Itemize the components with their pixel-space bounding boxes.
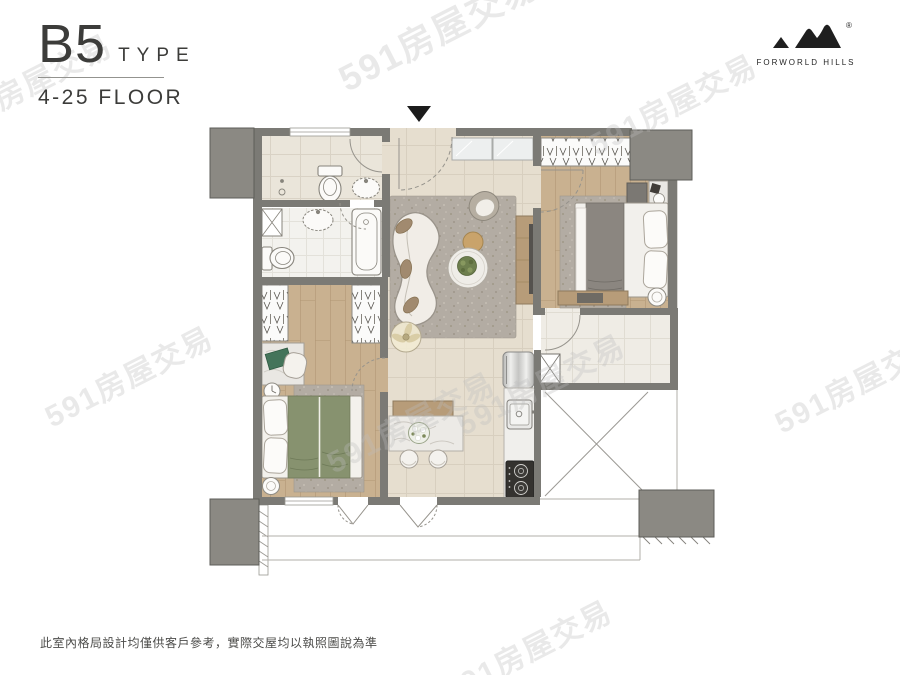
- unit-type-code: B5: [38, 20, 106, 70]
- mountain-logo-icon: ®: [751, 18, 861, 52]
- title-divider: [38, 77, 164, 78]
- toilet: [319, 176, 341, 202]
- unit-title-block: B5 TYPE 4-25 FLOOR: [38, 20, 196, 110]
- french-door: [338, 505, 368, 524]
- refrigerator: [503, 352, 534, 388]
- entry-arrow-icon: [407, 106, 431, 122]
- tv: [577, 293, 603, 303]
- balcony-curb: [259, 505, 268, 575]
- disclaimer-text: 此室內格局設計均僅供客戶參考，實際交屋均以執照圖說為準: [40, 634, 378, 651]
- registered-mark: ®: [846, 21, 852, 30]
- island-wood-top: [393, 401, 453, 416]
- entry-threshold: [390, 128, 456, 137]
- unit-type-label: TYPE: [118, 45, 196, 67]
- french-door: [400, 505, 437, 527]
- wardrobe: [352, 285, 382, 343]
- ceiling-fan: [391, 322, 422, 352]
- plant: [458, 257, 477, 276]
- wardrobe: [262, 285, 288, 341]
- page: B5 TYPE 4-25 FLOOR ® FORWORLD HILLS 591房…: [0, 0, 900, 675]
- burner: [515, 465, 528, 478]
- decor-plate: [648, 288, 666, 306]
- pillow: [643, 250, 668, 288]
- pillow: [643, 210, 668, 248]
- pillow: [263, 399, 288, 435]
- brand-logo: ® FORWORLD HILLS: [746, 18, 866, 67]
- floor-range: 4-25 FLOOR: [38, 86, 196, 110]
- closet: [541, 138, 630, 166]
- void-cross: [545, 392, 648, 496]
- pillow: [263, 437, 288, 473]
- tv: [529, 224, 533, 294]
- duvet: [586, 203, 624, 297]
- nightstand: [263, 478, 280, 495]
- burner: [515, 482, 528, 495]
- brand-name: FORWORLD HILLS: [746, 58, 866, 67]
- hatch-marks: [643, 537, 710, 544]
